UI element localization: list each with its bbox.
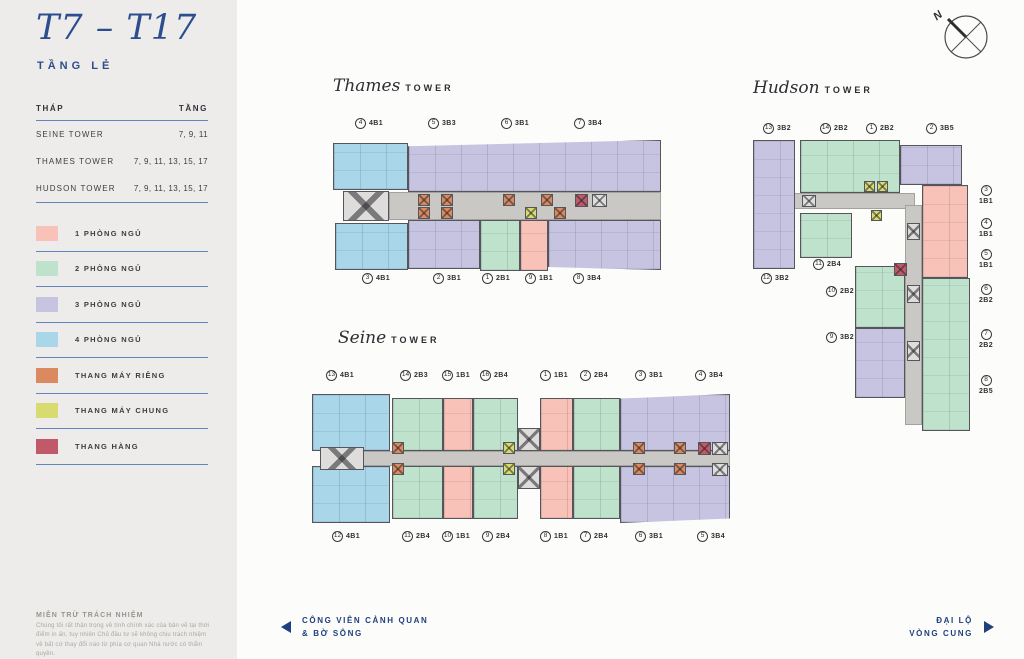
seine-unit-2br [573, 466, 620, 519]
private-lift-marker [541, 194, 553, 206]
unit-label: 112B4 [402, 531, 430, 542]
unit-label: 41B1 [975, 218, 997, 238]
floor-table-header: THÁP TẦNG [36, 104, 208, 121]
private-lift-marker [554, 207, 566, 219]
unit-label: 72B4 [580, 531, 608, 542]
unit-label: 53B3 [428, 118, 456, 129]
floor-table-row: THAMES TOWER 7, 9, 11, 13, 15, 17 [36, 148, 208, 175]
legend-item: 4 PHÒNG NGỦ [36, 323, 208, 359]
seine-tower-plan: 134B1142B3151B1162B411B122B433B143B4 [312, 370, 732, 550]
shared-lift-marker [864, 181, 875, 192]
stair-marker [518, 466, 540, 489]
stair-marker [907, 223, 920, 240]
unit-label: 81B1 [540, 531, 568, 542]
stair-marker [907, 285, 920, 303]
unit-label: 12B1 [482, 273, 510, 284]
shared-lift-marker [877, 181, 888, 192]
page-title: T7 – T17 [36, 8, 197, 48]
unit-label: 92B4 [482, 531, 510, 542]
legend-swatch [36, 439, 58, 454]
hudson-unit-1br-column [922, 185, 968, 278]
legend-swatch [36, 297, 58, 312]
private-lift-marker [441, 194, 453, 206]
seine-unit-4br-bottom [312, 466, 390, 523]
unit-label: 124B1 [332, 531, 360, 542]
unit-label: 23B1 [433, 273, 461, 284]
thames-unit-4br-top [333, 143, 408, 190]
unit-label: 62B2 [975, 284, 997, 304]
unit-label: 112B4 [813, 259, 841, 270]
legend-swatch [36, 332, 58, 347]
street-park-line1: CÔNG VIÊN CẢNH QUAN [302, 616, 428, 625]
sidebar: T7 – T17 TẦNG LẺ THÁP TẦNG SEINE TOWER 7… [0, 0, 237, 659]
legend-swatch [36, 403, 58, 418]
unit-label: 31B1 [975, 185, 997, 205]
unit-label: 53B4 [697, 531, 725, 542]
private-lift-marker [674, 442, 686, 454]
unit-label: 151B1 [442, 370, 470, 381]
hudson-unit-3br-right [900, 145, 962, 185]
thames-unit-4br-bottom [335, 223, 408, 270]
unit-label: 22B4 [580, 370, 608, 381]
unit-label: 72B2 [975, 329, 997, 349]
legend-item: 3 PHÒNG NGỦ [36, 287, 208, 323]
hudson-corridor-horizontal [775, 193, 915, 209]
hudson-unit-3br-wing [855, 328, 905, 398]
unit-label: 33B1 [635, 370, 663, 381]
shared-lift-marker [503, 463, 515, 475]
arrow-right-icon [984, 621, 994, 633]
hudson-tower-plan: 133B2142B212B223B5 123B2112B4102B293B2 3… [745, 123, 1023, 443]
legend-item: THANG HÀNG [36, 429, 208, 465]
floorplan-page: T7 – T17 TẦNG LẺ THÁP TẦNG SEINE TOWER 7… [0, 0, 1024, 659]
unit-label: 82B5 [975, 375, 997, 395]
unit-label: 142B2 [820, 123, 848, 134]
service-lift-marker [698, 442, 711, 455]
unit-label: 73B4 [574, 118, 602, 129]
hudson-tower-title: HudsonTOWER [753, 78, 873, 98]
stair-marker [518, 428, 540, 451]
street-label-boulevard: ĐẠI LỘ VÒNG CUNG [909, 614, 994, 640]
shared-lift-marker [503, 442, 515, 454]
unit-label: 23B5 [926, 123, 954, 134]
seine-stair-core [320, 447, 364, 470]
disclaimer-title: MIỄN TRỪ TRÁCH NHIỆM [36, 612, 214, 619]
shared-lift-marker [871, 210, 882, 221]
legend: 1 PHÒNG NGỦ 2 PHÒNG NGỦ 3 PHÒNG NGỦ [36, 216, 208, 465]
unit-label: 51B1 [975, 249, 997, 269]
floor-table: THÁP TẦNG SEINE TOWER 7, 9, 11 THAMES TO… [36, 104, 208, 203]
seine-unit-1br [540, 398, 573, 451]
street-park-line2: & BỜ SÔNG [302, 629, 363, 638]
seine-unit-4br-top [312, 394, 390, 451]
unit-label: 142B3 [400, 370, 428, 381]
col-tower: THÁP [36, 104, 64, 113]
unit-label: 43B4 [695, 370, 723, 381]
hudson-unit-2br-column [922, 278, 970, 431]
hudson-unit-2br-mid [800, 213, 852, 258]
street-boulevard-line1: ĐẠI LỘ [936, 616, 973, 625]
stair-marker [802, 195, 816, 207]
service-lift-marker [894, 263, 907, 276]
unit-label: 133B2 [763, 123, 791, 134]
stair-marker [712, 463, 728, 476]
private-lift-marker [392, 442, 404, 454]
street-label-park: CÔNG VIÊN CẢNH QUAN & BỜ SÔNG [281, 614, 428, 640]
seine-unit-2br [573, 398, 620, 451]
private-lift-marker [633, 442, 645, 454]
shared-lift-marker [525, 207, 537, 219]
disclaimer: MIỄN TRỪ TRÁCH NHIỆM Chúng tôi rất thận … [36, 612, 214, 659]
legend-swatch [36, 226, 58, 241]
legend-item: 2 PHÒNG NGỦ [36, 252, 208, 288]
stair-marker [592, 194, 607, 207]
private-lift-marker [674, 463, 686, 475]
unit-label: 63B1 [501, 118, 529, 129]
seine-unit-1br [443, 398, 473, 451]
legend-item: THANG MÁY CHUNG [36, 394, 208, 430]
legend-swatch [36, 368, 58, 383]
unit-label: 11B1 [540, 370, 568, 381]
compass-icon: N [933, 4, 995, 66]
thames-unit-3br-upper-band [408, 140, 661, 192]
floor-table-row: HUDSON TOWER 7, 9, 11, 13, 15, 17 [36, 175, 208, 202]
unit-label: 34B1 [362, 273, 390, 284]
private-lift-marker [441, 207, 453, 219]
unit-label: 91B1 [525, 273, 553, 284]
service-lift-marker [575, 194, 588, 207]
unit-label: 83B4 [573, 273, 601, 284]
unit-label: 102B2 [826, 286, 854, 297]
unit-label: 63B1 [635, 531, 663, 542]
thames-tower-plan: 44B153B363B173B4 34B123B112B191B183B4 [333, 118, 663, 293]
private-lift-marker [418, 194, 430, 206]
col-floor: TẦNG [179, 104, 208, 113]
seine-unit-1br [443, 466, 473, 519]
thames-unit-2br-lower [480, 220, 520, 271]
arrow-left-icon [281, 621, 291, 633]
unit-label: 162B4 [480, 370, 508, 381]
stair-marker [712, 442, 728, 455]
legend-swatch [36, 261, 58, 276]
seine-tower-title: SeineTOWER [338, 328, 440, 348]
thames-stair-core [343, 191, 389, 221]
unit-label: 101B1 [442, 531, 470, 542]
private-lift-marker [418, 207, 430, 219]
stair-marker [907, 341, 920, 361]
seine-corridor [348, 451, 730, 466]
legend-item: THANG MÁY RIÊNG [36, 358, 208, 394]
unit-label: 123B2 [761, 273, 789, 284]
hudson-unit-3br-left [753, 140, 795, 269]
private-lift-marker [633, 463, 645, 475]
legend-item: 1 PHÒNG NGỦ [36, 216, 208, 252]
unit-label: 44B1 [355, 118, 383, 129]
thames-tower-title: ThamesTOWER [333, 76, 454, 96]
seine-unit-1br [540, 466, 573, 519]
private-lift-marker [503, 194, 515, 206]
table-bottom-rule [36, 202, 208, 203]
thames-unit-3br-lower-right [548, 220, 661, 270]
floor-table-row: SEINE TOWER 7, 9, 11 [36, 121, 208, 148]
thames-unit-3br-lower-left [408, 220, 480, 269]
thames-unit-1br-lower [520, 220, 548, 271]
unit-label: 134B1 [326, 370, 354, 381]
unit-label: 12B2 [866, 123, 894, 134]
private-lift-marker [392, 463, 404, 475]
disclaimer-body: Chúng tôi rất thận trọng về tính chính x… [36, 622, 214, 659]
street-boulevard-line2: VÒNG CUNG [909, 629, 973, 638]
page-subtitle: TẦNG LẺ [37, 60, 113, 72]
unit-label: 93B2 [826, 332, 854, 343]
